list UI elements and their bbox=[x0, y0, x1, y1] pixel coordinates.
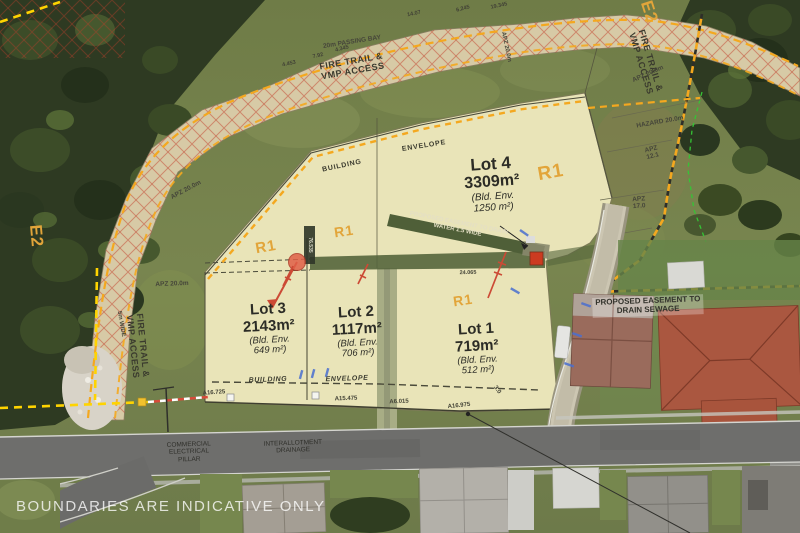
lot2-label: Lot 2 1117m² (Bld. Env. 706 m²) bbox=[331, 303, 384, 360]
aerial-subdivision-map: E2 E2 R1 R1 R1 R1 Lot 4 3309m² (Bld. Env… bbox=[0, 0, 800, 533]
hazard-hatch-corner bbox=[0, 0, 125, 58]
survey-mark bbox=[227, 394, 234, 401]
shed bbox=[667, 261, 704, 289]
interallotment-drainage-label: INTERALLOTMENTDRAINAGE bbox=[264, 439, 323, 456]
lot3-label: Lot 3 2143m² (Bld. Env. 649 m²) bbox=[242, 300, 297, 357]
apz-17-label: APZ17.0 bbox=[632, 195, 646, 210]
measurement-bottom-2: A15.475 bbox=[335, 396, 358, 403]
zone-label-r1-lot1: R1 bbox=[452, 291, 474, 310]
map-graphics bbox=[0, 0, 800, 533]
apz-label-2: APZ 20.0m bbox=[155, 280, 188, 288]
watermark: BOUNDARIES ARE INDICATIVE ONLY bbox=[16, 498, 326, 515]
survey-mark bbox=[312, 392, 319, 399]
easement-length-label: 24.065 bbox=[460, 270, 477, 276]
zone-label-r1-lot4: R1 bbox=[536, 160, 566, 186]
zone-label-r1-lot3: R1 bbox=[254, 237, 278, 257]
lot1-label: Lot 1 719m² (Bld. Env. 512 m²) bbox=[454, 320, 500, 377]
survey-mark bbox=[138, 398, 146, 406]
measurement-bottom-3: A6.015 bbox=[389, 399, 409, 406]
building-envelope-label-bottom-2: ENVELOPE bbox=[325, 375, 368, 383]
zone-label-e2-left: E2 bbox=[25, 224, 47, 248]
lot4-label: Lot 4 3309m² (Bld. Env. 1250 m²) bbox=[462, 152, 521, 215]
lot-depth-label: 76.535 bbox=[307, 237, 313, 252]
zone-label-r1-lot2: R1 bbox=[333, 222, 355, 241]
building-envelope-label-bottom-1: BUILDING bbox=[249, 376, 288, 384]
easement-sewer-label: PROPOSED EASEMENT TODRAIN SEWAGE bbox=[592, 294, 704, 318]
commercial-pillar-label: COMMERCIALELECTRICALPILLAR bbox=[167, 440, 212, 463]
